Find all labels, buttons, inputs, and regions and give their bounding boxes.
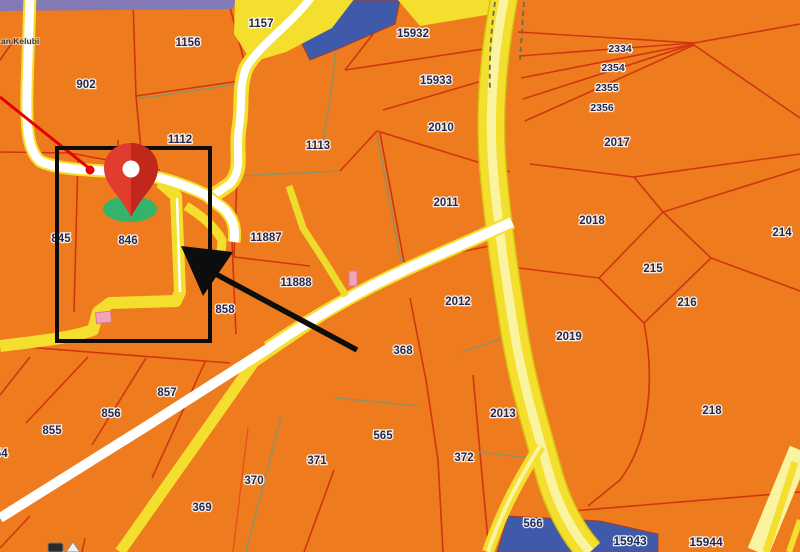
parcel-label-15944: 15944 — [689, 535, 723, 549]
leader-endpoint-dot — [86, 166, 95, 175]
parcel-label-2354: 2354 — [601, 62, 625, 74]
pin-hole — [123, 161, 140, 178]
place-name-label: an Kelubi — [1, 36, 39, 46]
parcel-label-855: 855 — [42, 425, 62, 437]
parcel-label-2011: 2011 — [434, 197, 460, 209]
parcel-label-2010: 2010 — [428, 122, 454, 134]
parcel-label-857: 857 — [157, 387, 176, 399]
parcel-label-215: 215 — [643, 263, 663, 275]
building-pink-2 — [349, 271, 357, 286]
map-viewport[interactable]: 9021156115715932159332334235423552356201… — [0, 0, 800, 552]
parcel-label-15932: 15932 — [397, 28, 429, 40]
parcel-label-2355: 2355 — [595, 82, 619, 94]
parcel-label-2017: 2017 — [604, 137, 630, 149]
parcel-label-15933: 15933 — [420, 75, 452, 87]
control-fragment-icon — [48, 543, 63, 552]
parcel-label-2019: 2019 — [556, 331, 582, 343]
parcel-label-1156: 1156 — [176, 37, 201, 49]
parcel-label-2334: 2334 — [608, 43, 632, 55]
parcel-label-846: 846 — [118, 235, 137, 247]
parcel-label-1157: 1157 — [249, 18, 274, 30]
parcel-label-371: 371 — [307, 455, 327, 467]
parcel-label-2012: 2012 — [445, 296, 471, 308]
parcel-label-15943: 15943 — [613, 534, 647, 548]
parcel-label-370: 370 — [244, 475, 263, 487]
parcel-label-902: 902 — [76, 79, 95, 91]
parcel-label-372: 372 — [454, 452, 473, 464]
building-pink-1 — [96, 311, 112, 324]
parcel-label-369: 369 — [192, 502, 211, 514]
parcel-label-856: 856 — [101, 408, 120, 420]
parcel-label-11888: 11888 — [280, 277, 312, 289]
parcel-label-218: 218 — [702, 405, 722, 417]
parcel-label-11887: 11887 — [250, 232, 281, 244]
parcel-label-216: 216 — [677, 297, 696, 309]
parcel-label-566: 566 — [523, 518, 542, 530]
parcel-label-2356: 2356 — [590, 102, 614, 114]
parcel-label-214: 214 — [772, 227, 792, 239]
parcel-label-2018: 2018 — [579, 215, 605, 227]
parcel-label-858: 858 — [215, 304, 235, 316]
parcel-label-854: 854 — [0, 448, 8, 460]
parcel-label-1112: 1112 — [168, 134, 192, 146]
parcel-label-845: 845 — [51, 233, 71, 245]
parcel-label-565: 565 — [373, 430, 393, 442]
parcel-label-368: 368 — [393, 345, 413, 357]
cadastral-map[interactable]: 9021156115715932159332334235423552356201… — [0, 0, 800, 552]
parcel-label-1113: 1113 — [306, 140, 330, 152]
location-pin[interactable] — [103, 143, 158, 222]
parcel-label-2013: 2013 — [490, 408, 516, 420]
